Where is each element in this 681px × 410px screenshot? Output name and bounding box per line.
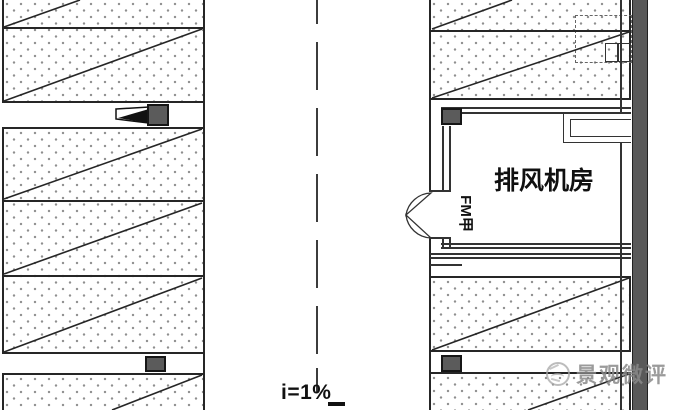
jet-fan-wedge: [116, 107, 149, 123]
double-swing-door-icon: [406, 193, 431, 238]
jet-fan-icon: [147, 104, 169, 126]
duct-shaft-box-inner: [570, 119, 631, 137]
fire-door-label: FM甲: [446, 190, 486, 236]
watermark: 景观微评: [546, 358, 668, 390]
fan-room-wall: [441, 243, 631, 245]
parking-stall-block: [429, 276, 631, 352]
stall-separator: [2, 27, 205, 29]
slope-label: i=1%: [281, 381, 331, 405]
stall-separator: [429, 30, 631, 32]
equipment-box-icon: [145, 356, 166, 372]
slope-arrow-tick: [328, 402, 345, 406]
fan-room-wall: [430, 253, 631, 255]
parking-stall-block: [2, 127, 205, 354]
fan-room-wall: [430, 257, 631, 259]
stall-separator: [2, 275, 205, 277]
perimeter-wall-bar: [632, 0, 648, 410]
fan-room-wall: [442, 126, 444, 190]
row-edge-line: [429, 352, 431, 372]
wall-face-line: [620, 0, 622, 410]
parking-stall-block: [2, 373, 205, 410]
equipment-grid-divider: [617, 43, 619, 62]
fan-room-wall: [441, 107, 631, 109]
stall-separator: [2, 200, 205, 202]
aisle-centerline: [316, 0, 318, 392]
watermark-text: 景观微评: [576, 359, 668, 389]
fan-room-wall: [430, 264, 462, 266]
watermark-logo-icon: [546, 362, 570, 386]
fan-room-wall: [441, 247, 631, 249]
garage-floor-plan: i=1% 排风机房 FM甲: [0, 0, 681, 410]
door-jamb: [429, 237, 451, 239]
fan-room-label: 排风机房: [494, 161, 594, 197]
row-edge-line: [203, 354, 205, 373]
row-edge-line: [203, 103, 205, 127]
equipment-box-icon: [441, 355, 462, 372]
row-edge-line: [429, 100, 431, 192]
fan-room-wall: [449, 126, 451, 190]
equipment-box-icon: [441, 108, 462, 125]
parking-stall-block: [2, 0, 205, 103]
